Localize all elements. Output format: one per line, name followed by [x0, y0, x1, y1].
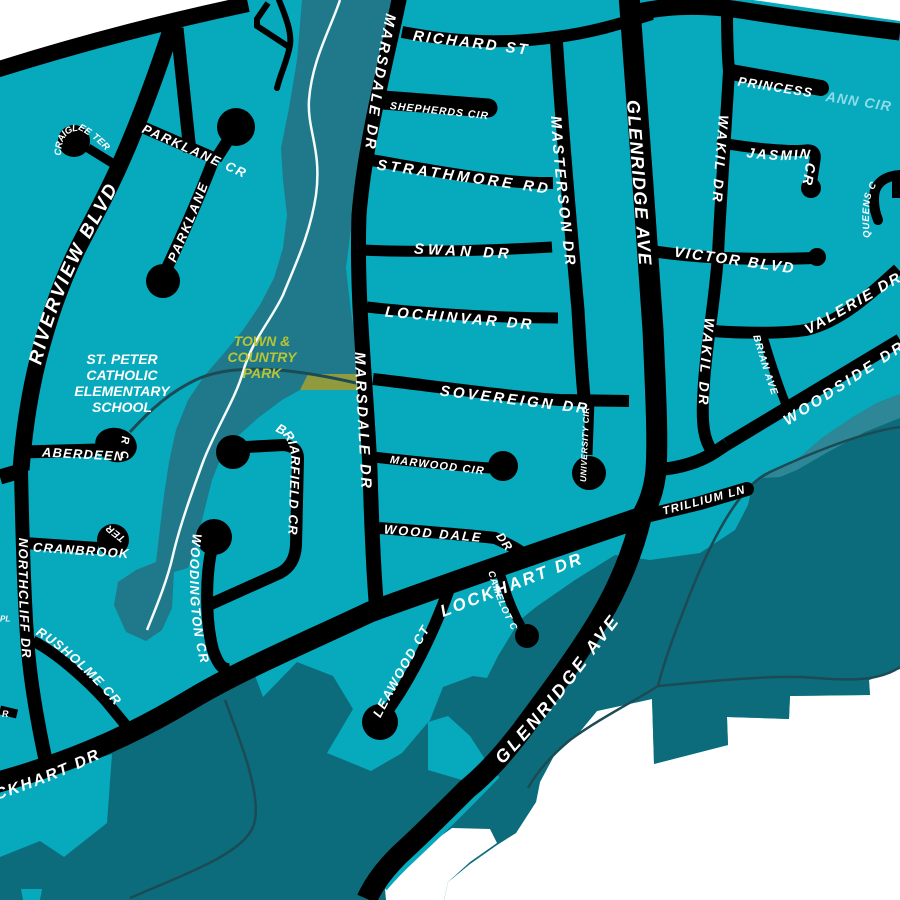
- svg-text:CATHOLIC: CATHOLIC: [86, 367, 158, 383]
- svg-text:PL: PL: [0, 615, 10, 624]
- svg-text:ELEMENTARY: ELEMENTARY: [74, 383, 171, 399]
- svg-text:PARK: PARK: [243, 365, 283, 381]
- svg-text:R: R: [118, 435, 131, 444]
- svg-text:ST. PETER: ST. PETER: [86, 351, 158, 367]
- svg-text:COUNTRY: COUNTRY: [228, 349, 299, 365]
- svg-text:SCHOOL: SCHOOL: [92, 399, 152, 415]
- svg-text:TOWN &: TOWN &: [234, 333, 291, 349]
- svg-text:R: R: [2, 709, 9, 719]
